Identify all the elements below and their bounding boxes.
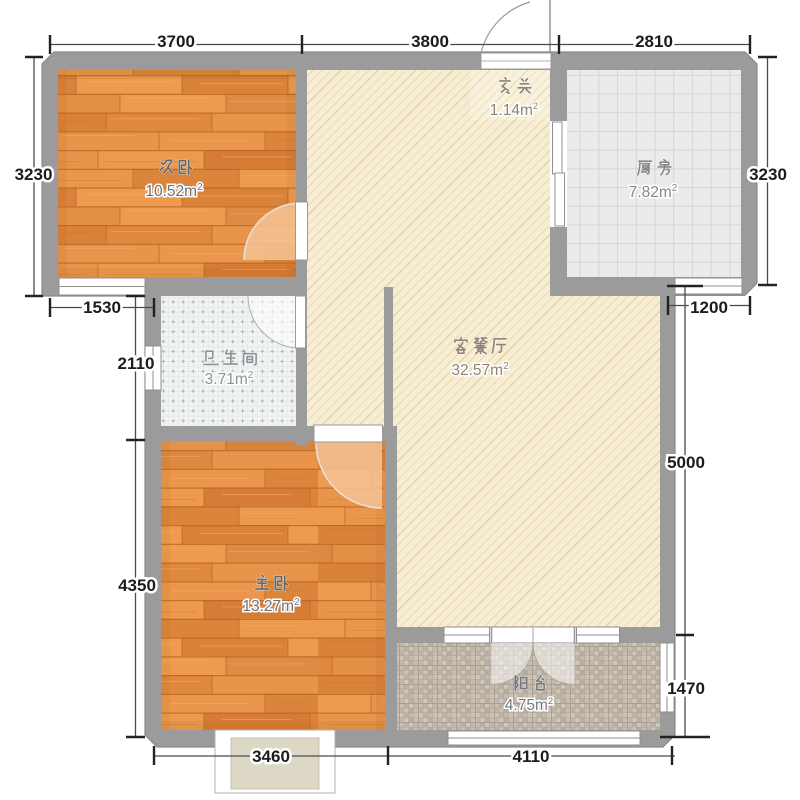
- svg-text:4350: 4350: [118, 576, 156, 595]
- svg-text:3800: 3800: [411, 32, 449, 51]
- svg-text:1.14m2: 1.14m2: [490, 101, 538, 119]
- svg-text:7.82m2: 7.82m2: [629, 183, 678, 201]
- svg-text:13.27m2: 13.27m2: [242, 597, 300, 615]
- svg-text:3700: 3700: [157, 32, 195, 51]
- svg-text:2110: 2110: [118, 354, 155, 373]
- svg-text:2810: 2810: [635, 32, 673, 51]
- svg-text:1530: 1530: [83, 298, 121, 317]
- svg-text:1200: 1200: [690, 298, 728, 317]
- svg-text:3460: 3460: [252, 747, 290, 766]
- svg-text:32.57m2: 32.57m2: [451, 361, 509, 379]
- svg-text:4110: 4110: [513, 747, 550, 766]
- svg-text:3230: 3230: [749, 165, 787, 184]
- svg-text:1470: 1470: [667, 679, 705, 698]
- svg-text:4.75m2: 4.75m2: [505, 696, 553, 714]
- svg-text:3.71m2: 3.71m2: [205, 370, 254, 388]
- svg-text:10.52m2: 10.52m2: [145, 182, 203, 200]
- svg-text:5000: 5000: [667, 453, 705, 472]
- svg-text:3230: 3230: [15, 165, 53, 184]
